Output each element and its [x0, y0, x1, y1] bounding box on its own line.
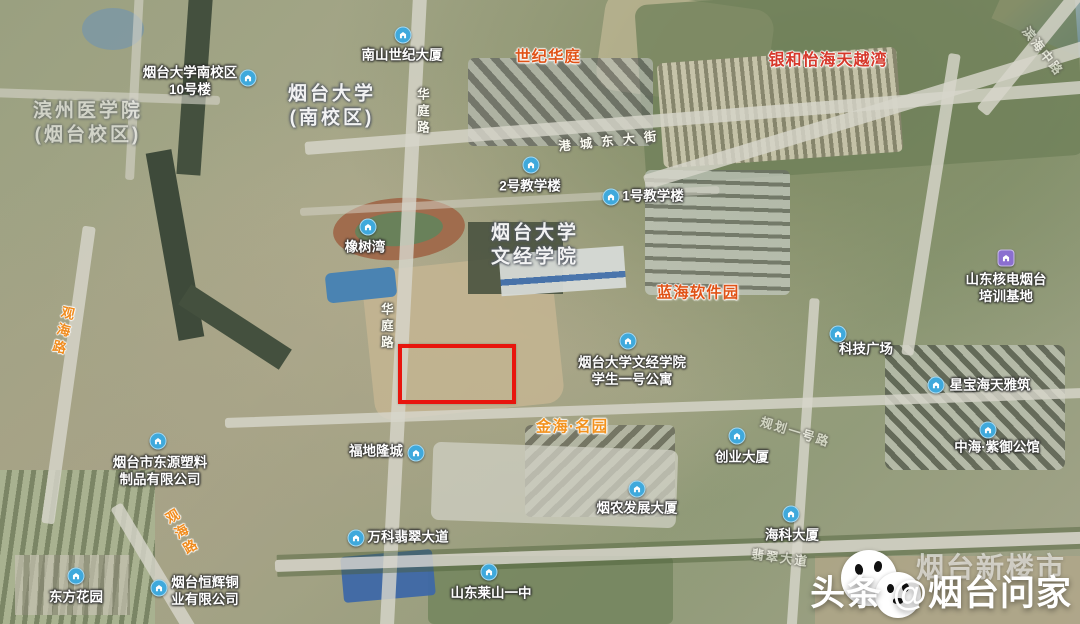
label-wenjing-student-apartment-1: 烟台大学文经学院学生一号公寓 [578, 355, 686, 389]
map-canvas[interactable]: 烟台新楼市 头条 @烟台问家 滨州医学院(烟台校区)南山世纪大厦世纪华庭银和怡海… [0, 0, 1080, 624]
label-planned-road-1: 规划一号路 [758, 415, 832, 451]
label-vanke-feicui-avenue-poi-icon[interactable] [348, 530, 365, 547]
watermark-byline: 头条 @烟台问家 [810, 565, 1072, 616]
label-dongfang-garden-poi-icon[interactable] [68, 568, 85, 585]
label-vanke-feicui-avenue: 万科翡翠大道 [368, 530, 449, 547]
school-grounds [428, 556, 673, 624]
label-fudi-longcheng-poi-icon[interactable] [408, 445, 425, 462]
watermark-platform: 头条 [810, 574, 882, 613]
label-teaching-bldg-1-poi-icon[interactable] [603, 189, 620, 206]
label-chuangye-tower: 创业大厦 [715, 450, 769, 467]
label-yannong-development-tower-poi-icon[interactable] [629, 481, 646, 498]
label-henghui-copper-co-poi-icon[interactable] [151, 580, 168, 597]
label-keji-plaza-poi-icon[interactable] [830, 326, 847, 343]
label-nanshan-century-tower-poi-icon[interactable] [395, 27, 412, 44]
label-dongyuan-plastic-co-poi-icon[interactable] [150, 433, 167, 450]
label-guanhai-road-south: 观海路 [160, 507, 201, 561]
label-laishan-no1-highschool-poi-icon[interactable] [481, 564, 498, 581]
river-segment [176, 0, 213, 176]
highlight-plot-rectangle [398, 344, 516, 404]
label-chuangye-tower-poi-icon[interactable] [729, 428, 746, 445]
label-haike-tower-poi-icon[interactable] [783, 506, 800, 523]
label-teaching-bldg-2-poi-icon[interactable] [523, 157, 540, 174]
label-ytu-south-bldg10-poi-icon[interactable] [240, 70, 257, 87]
label-xingbao-haitian-yazhu-poi-icon[interactable] [928, 377, 945, 394]
building-cluster [15, 555, 130, 615]
watermark-account: @烟台问家 [893, 574, 1072, 613]
building-cluster [885, 345, 1065, 470]
white-roof-building [499, 246, 627, 297]
watermark: 烟台新楼市 头条 @烟台问家 [827, 538, 1072, 618]
label-oak-bay-poi-icon[interactable] [360, 219, 377, 236]
label-nuclear-training-base: 山东核电烟台培训基地 [966, 272, 1047, 306]
label-ytu-south-campus: 烟台大学(南校区) [288, 82, 376, 130]
label-nuclear-training-base-poi-icon[interactable] [998, 250, 1015, 267]
label-nanshan-century-tower: 南山世纪大厦 [362, 48, 443, 65]
label-wenjing-student-apartment-1-poi-icon[interactable] [620, 333, 637, 350]
label-teaching-bldg-2: 2号教学楼 [499, 179, 561, 196]
label-zhonghai-ziyu-mansion-poi-icon[interactable] [980, 422, 997, 439]
